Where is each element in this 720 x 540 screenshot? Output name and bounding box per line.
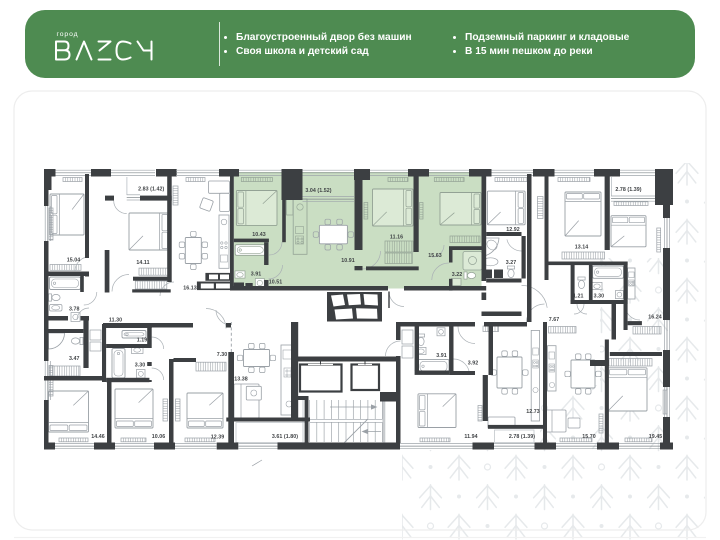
svg-text:7.30: 7.30 [217, 352, 228, 358]
svg-text:12.39: 12.39 [211, 435, 225, 441]
svg-text:3.47: 3.47 [69, 356, 80, 362]
svg-text:1.21: 1.21 [573, 294, 584, 300]
svg-text:3.91: 3.91 [251, 271, 262, 277]
svg-text:город: город [57, 31, 79, 38]
svg-text:10.43: 10.43 [252, 232, 266, 238]
svg-text:2.78 (1.39): 2.78 (1.39) [509, 434, 535, 440]
svg-text:2.83 (1.42): 2.83 (1.42) [138, 186, 164, 192]
svg-text:3.27: 3.27 [506, 260, 517, 266]
svg-text:3.22: 3.22 [452, 272, 463, 278]
svg-text:10.91: 10.91 [341, 258, 355, 264]
svg-text:3.04 (1.52): 3.04 (1.52) [305, 188, 331, 194]
svg-text:3.92: 3.92 [468, 360, 479, 366]
svg-text:13.14: 13.14 [575, 244, 589, 250]
svg-text:1.19: 1.19 [137, 337, 148, 343]
svg-text:15.63: 15.63 [428, 253, 442, 259]
svg-text:2.78 (1.39): 2.78 (1.39) [615, 187, 641, 193]
svg-text:15.70: 15.70 [582, 434, 596, 440]
svg-text:16.13: 16.13 [183, 286, 197, 292]
svg-text:3.30: 3.30 [594, 294, 605, 300]
svg-text:3.78: 3.78 [69, 306, 80, 312]
svg-text:7.67: 7.67 [549, 317, 560, 323]
svg-text:11.16: 11.16 [390, 234, 403, 240]
svg-text:16.24: 16.24 [648, 314, 662, 320]
svg-text:11.30: 11.30 [109, 317, 122, 323]
svg-text:11.94: 11.94 [464, 434, 477, 440]
svg-text:14.46: 14.46 [91, 434, 105, 440]
svg-text:12.92: 12.92 [506, 227, 520, 233]
svg-text:3.61 (1.80): 3.61 (1.80) [272, 434, 298, 440]
svg-text:10.06: 10.06 [152, 434, 166, 440]
svg-text:14.11: 14.11 [136, 260, 149, 266]
svg-text:19.45: 19.45 [649, 434, 663, 440]
svg-text:10.51: 10.51 [269, 279, 283, 285]
svg-text:3.91: 3.91 [436, 353, 447, 359]
svg-text:15.04: 15.04 [67, 257, 81, 263]
svg-text:13.38: 13.38 [234, 376, 248, 382]
svg-text:12.73: 12.73 [526, 409, 540, 415]
svg-text:3.30: 3.30 [135, 362, 146, 368]
